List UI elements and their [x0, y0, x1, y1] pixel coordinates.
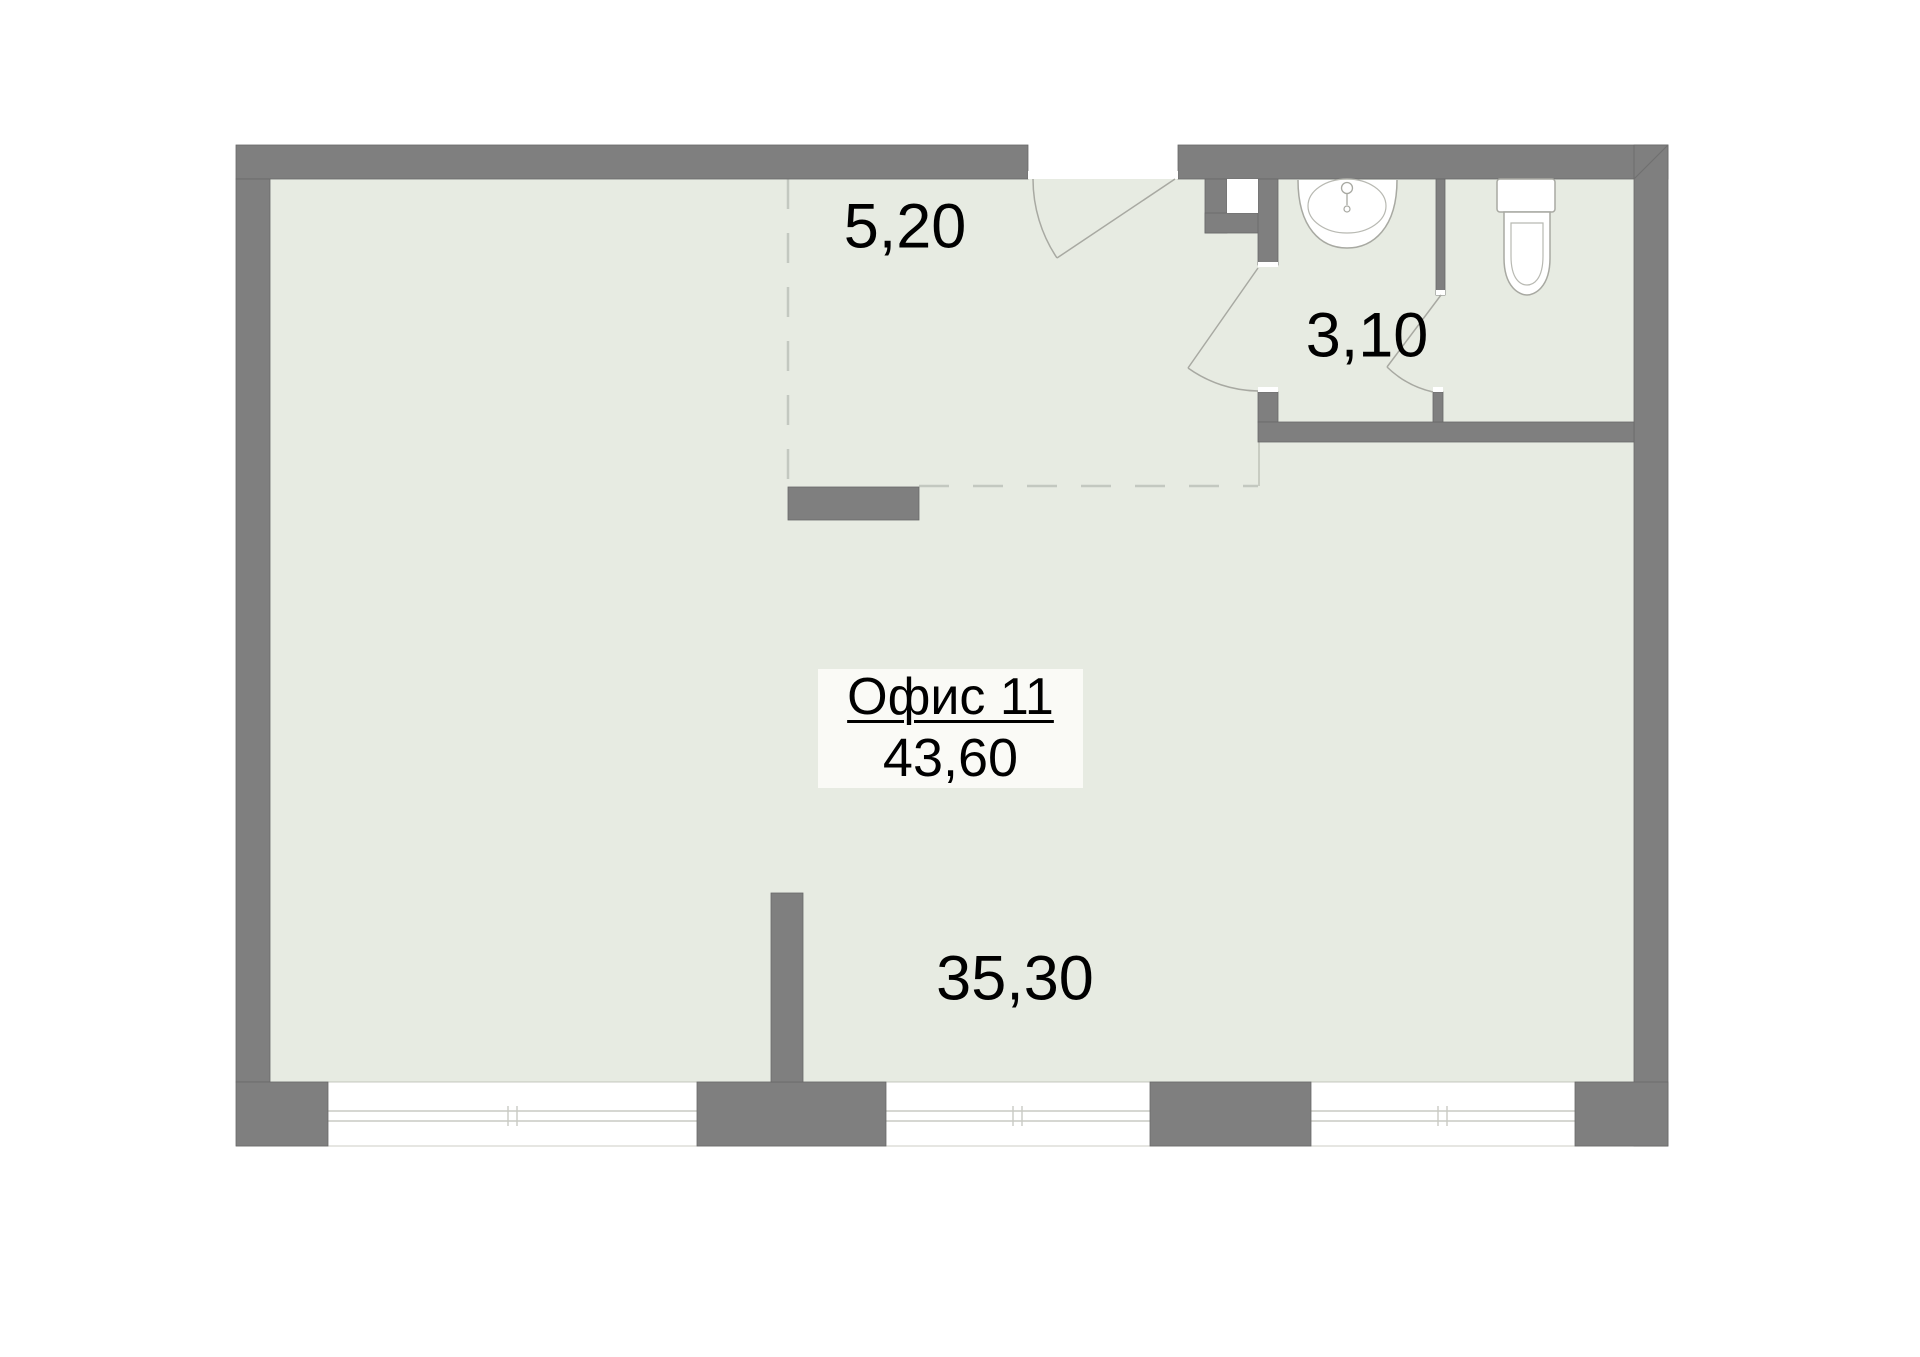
- floor-plan: 5,20 3,10 35,30 Офис 11 43,60: [0, 0, 1920, 1357]
- left-wall: [236, 179, 270, 1082]
- top-wall-left: [236, 145, 1028, 179]
- right-wall: [1634, 145, 1668, 1146]
- entrance-jamb-right: [1170, 171, 1178, 179]
- entrance-jamb-left: [1028, 171, 1036, 179]
- top-wall-right: [1178, 145, 1668, 179]
- toilet-tank: [1497, 179, 1555, 212]
- bathroom-jamb-bottom: [1258, 387, 1278, 392]
- bottom-pillar-1: [697, 1082, 886, 1146]
- wc-jamb-bottom: [1433, 387, 1443, 392]
- office-title: Офис 11: [847, 670, 1054, 725]
- bathroom-wall-stub: [1258, 392, 1278, 422]
- bathroom-area-label: 3,10: [1306, 305, 1429, 368]
- bottom-partition-stub: [771, 893, 803, 1082]
- window-band: [270, 1082, 1634, 1146]
- bathroom-bottom-wall: [1258, 422, 1634, 442]
- bottom-pillar-2: [1150, 1082, 1311, 1146]
- bathroom-wall-upper: [1258, 179, 1278, 265]
- shaft-niche: [1227, 179, 1258, 213]
- wc-jamb-top: [1436, 290, 1445, 295]
- bathroom-jamb-top: [1258, 262, 1278, 267]
- office-total-area: 43,60: [883, 730, 1018, 787]
- bottom-corner-left: [236, 1082, 328, 1146]
- office-label-box: Офис 11 43,60: [818, 669, 1083, 788]
- hall-area-label: 5,20: [844, 196, 967, 259]
- bottom-corner-right: [1575, 1082, 1668, 1146]
- sink-faucet-head: [1342, 183, 1353, 194]
- mid-partition-stub: [788, 487, 919, 520]
- wc-divider-wall: [1436, 179, 1445, 295]
- main-room-area-label: 35,30: [936, 948, 1094, 1011]
- wc-divider-stub: [1433, 392, 1443, 422]
